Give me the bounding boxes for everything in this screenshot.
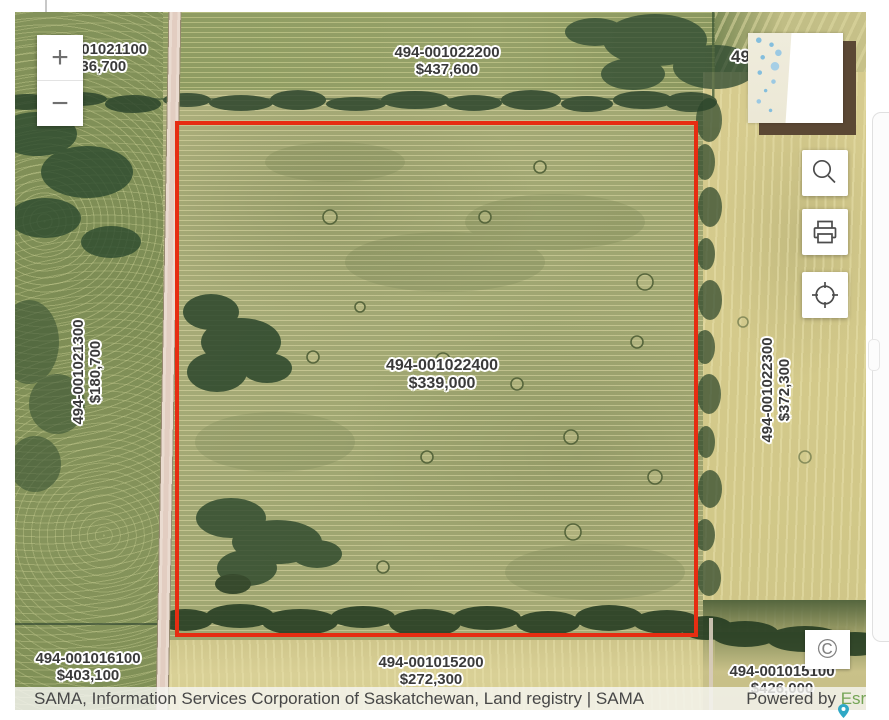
locate-icon <box>808 278 842 312</box>
zoom-in-button[interactable]: + <box>37 35 83 81</box>
parcel-id: 494-001015200 <box>378 654 483 671</box>
copyright-icon: © <box>818 634 838 665</box>
parcel-label-left: 494-001021300 $180,700 <box>70 319 104 424</box>
search-button[interactable] <box>802 150 848 196</box>
parcel-label-bottom-center: 494-001015200 $272,300 <box>378 654 483 688</box>
print-icon <box>808 215 842 249</box>
parcel-value: $437,600 <box>394 61 499 78</box>
forest-top-right <box>565 12 757 98</box>
parcel-value: $180,700 <box>87 319 104 424</box>
parcel-label-center: 494-001022400 $339,000 <box>386 357 498 393</box>
page-top-divider <box>45 0 47 12</box>
copyright-button[interactable]: © <box>805 630 850 669</box>
parcel-id: 494-001022300 <box>759 337 776 442</box>
plus-icon: + <box>51 41 69 75</box>
overview-map[interactable] <box>748 33 843 123</box>
side-panel-edge[interactable] <box>872 112 889 642</box>
powered-by-prefix: Powered by <box>746 689 841 708</box>
print-button[interactable] <box>802 209 848 255</box>
minus-icon: − <box>51 87 69 121</box>
panel-grip-handle[interactable] <box>868 339 880 371</box>
zoom-out-button[interactable]: − <box>37 81 83 126</box>
parcel-id: 494-001016100 <box>35 650 140 667</box>
boundary-line-bottom-left <box>15 623 163 625</box>
parcel-value: $372,300 <box>776 337 793 442</box>
parcel-label-right: 494-001022300 $372,300 <box>759 337 793 442</box>
province-shape <box>748 33 797 123</box>
search-icon <box>808 156 842 190</box>
attribution-sources: SAMA, Information Services Corporation o… <box>34 689 746 709</box>
esri-pin-icon <box>838 704 849 718</box>
parcel-label-bottom-left: 494-001016100 $403,100 <box>35 650 140 684</box>
zoom-control: + − <box>37 35 83 126</box>
locate-button[interactable] <box>802 272 848 318</box>
map-canvas[interactable]: 494-001021100 $436,700 494-001022200 $43… <box>15 12 866 710</box>
attribution-bar: SAMA, Information Services Corporation o… <box>15 687 866 710</box>
forest-left-top <box>15 112 141 258</box>
parcel-id: 494-001022200 <box>394 44 499 61</box>
parcel-value: $403,100 <box>35 667 140 684</box>
parcel-id: 494-001022400 <box>386 357 498 375</box>
parcel-id: 494-001021300 <box>70 319 87 424</box>
parcel-value: $272,300 <box>378 671 483 688</box>
parcel-value: $339,000 <box>386 375 498 393</box>
map-application-window: 494-001021100 $436,700 494-001022200 $43… <box>0 0 889 720</box>
tree-row-top <box>15 90 717 113</box>
tree-column-right <box>695 98 722 596</box>
parcel-label-top-center: 494-001022200 $437,600 <box>394 44 499 78</box>
